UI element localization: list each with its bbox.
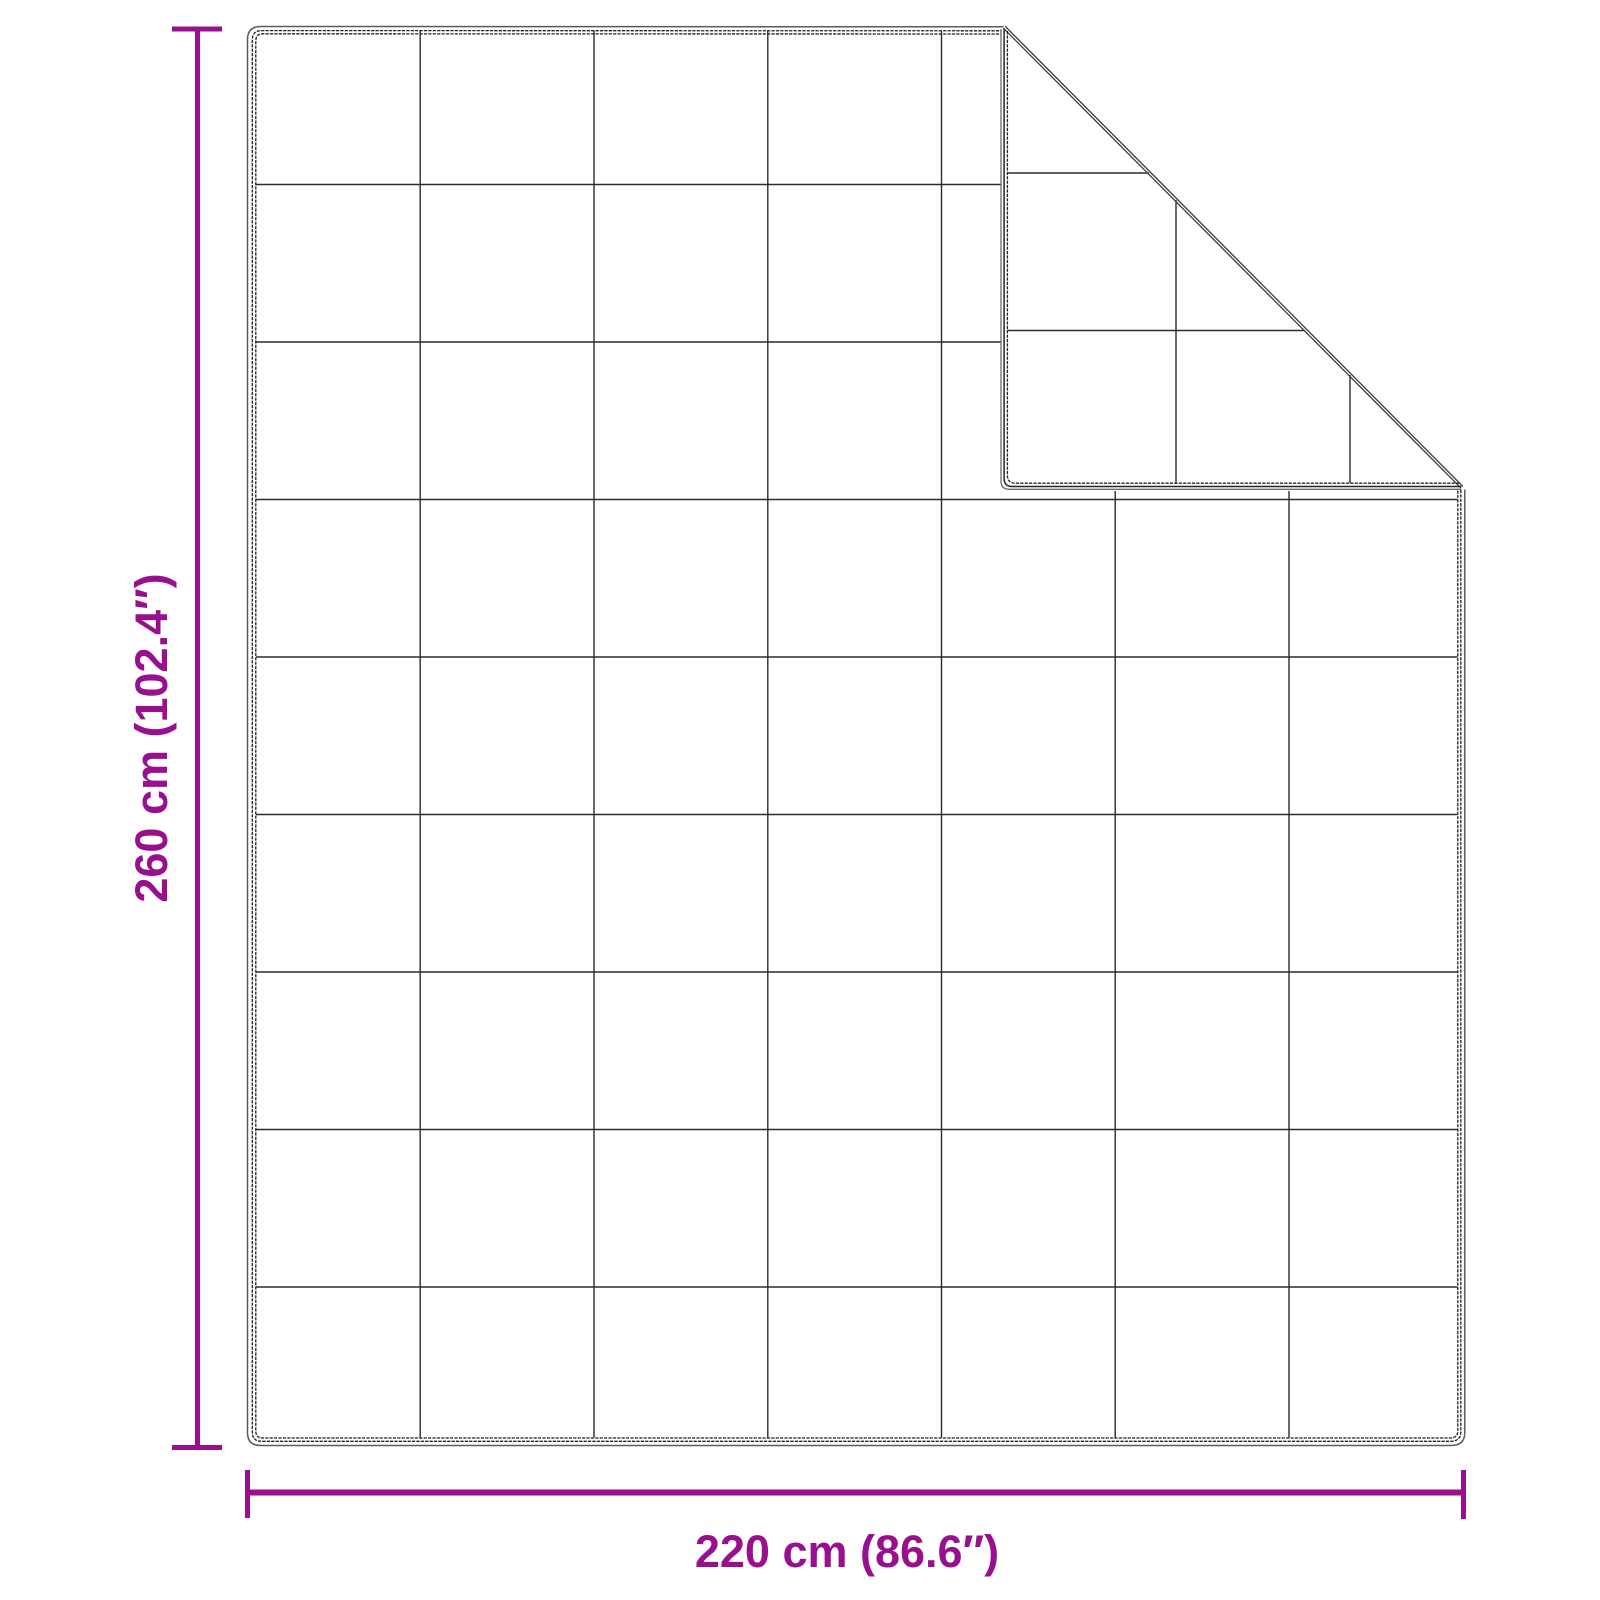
svg-text:220 cm (86.6″): 220 cm (86.6″)	[695, 1526, 999, 1577]
svg-text:260 cm (102.4″): 260 cm (102.4″)	[126, 573, 177, 902]
